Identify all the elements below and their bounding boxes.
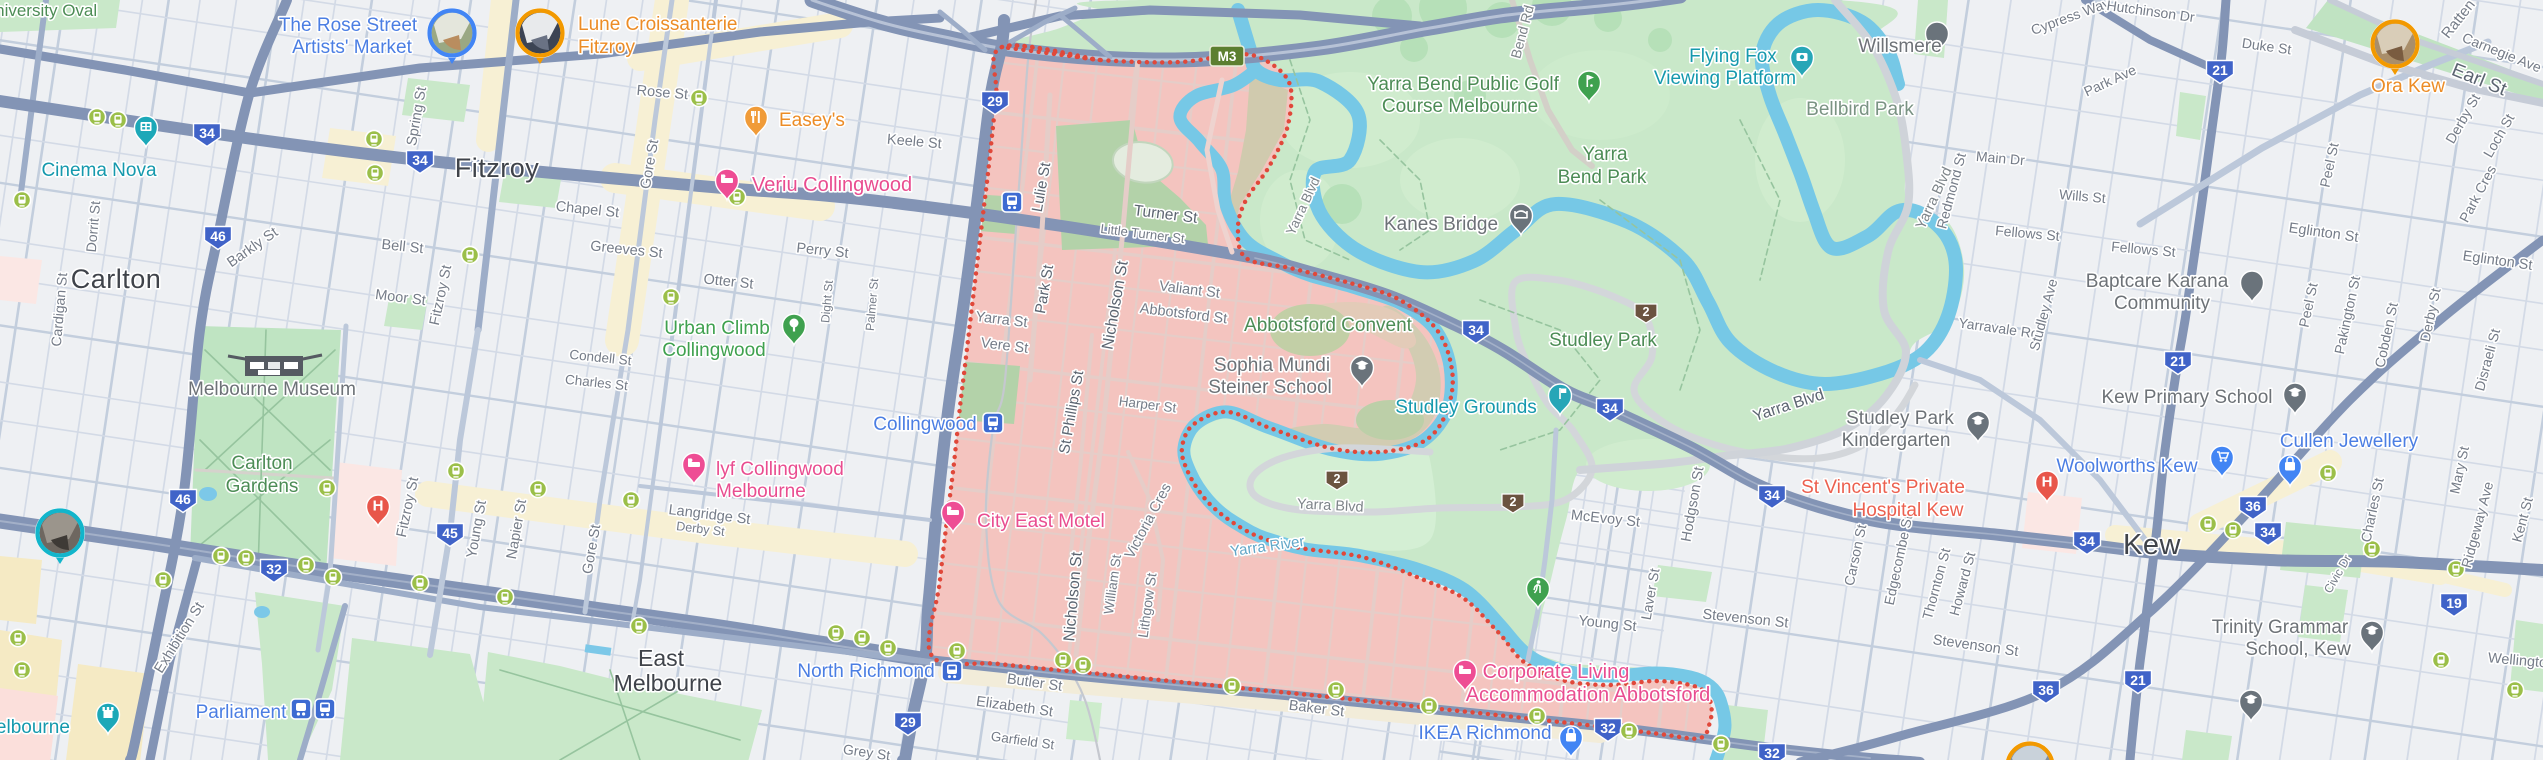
svg-text:29: 29 bbox=[987, 93, 1003, 109]
svg-text:29: 29 bbox=[900, 714, 916, 730]
svg-text:Kew Primary School: Kew Primary School bbox=[2101, 387, 2272, 408]
svg-text:Urban Climb: Urban Climb bbox=[664, 318, 770, 339]
svg-text:36: 36 bbox=[2038, 682, 2054, 698]
svg-text:Corporate Living: Corporate Living bbox=[1483, 661, 1630, 683]
svg-text:Woolworths Kew: Woolworths Kew bbox=[2056, 456, 2197, 477]
svg-text:Melbourne Museum: Melbourne Museum bbox=[188, 379, 356, 400]
svg-text:Viewing Platform: Viewing Platform bbox=[1654, 68, 1796, 89]
svg-text:34: 34 bbox=[2260, 524, 2276, 540]
svg-text:Studley Grounds: Studley Grounds bbox=[1395, 397, 1537, 418]
svg-text:M3: M3 bbox=[1218, 49, 1237, 64]
svg-text:Cinema Nova: Cinema Nova bbox=[41, 160, 157, 181]
svg-text:2: 2 bbox=[1643, 305, 1650, 319]
svg-text:34: 34 bbox=[1468, 322, 1484, 338]
svg-text:Abbotsford Convent: Abbotsford Convent bbox=[1244, 315, 1413, 336]
svg-text:Melbourne: Melbourne bbox=[0, 717, 70, 738]
svg-text:Course Melbourne: Course Melbourne bbox=[1382, 96, 1538, 117]
svg-text:2: 2 bbox=[1334, 472, 1341, 486]
svg-text:Studley Park: Studley Park bbox=[1846, 408, 1954, 429]
svg-text:Gardens: Gardens bbox=[226, 476, 299, 497]
svg-text:34: 34 bbox=[1602, 400, 1618, 416]
svg-text:School, Kew: School, Kew bbox=[2245, 639, 2351, 660]
svg-text:Lune Croissanterie: Lune Croissanterie bbox=[578, 14, 737, 35]
svg-text:46: 46 bbox=[210, 228, 226, 244]
svg-text:Kindergarten: Kindergarten bbox=[1842, 430, 1951, 451]
svg-text:Melbourne: Melbourne bbox=[614, 670, 723, 696]
svg-text:Artists' Market: Artists' Market bbox=[292, 37, 412, 58]
svg-text:19: 19 bbox=[2446, 595, 2462, 611]
svg-text:21: 21 bbox=[2170, 353, 2186, 369]
svg-text:Collingwood: Collingwood bbox=[662, 340, 766, 361]
svg-text:Willsmere: Willsmere bbox=[1858, 36, 1941, 57]
svg-text:Trinity Grammar: Trinity Grammar bbox=[2212, 617, 2349, 638]
svg-text:Carlton: Carlton bbox=[231, 453, 292, 474]
svg-text:Steiner School: Steiner School bbox=[1208, 377, 1332, 398]
svg-text:North Richmond: North Richmond bbox=[797, 661, 934, 682]
svg-text:Community: Community bbox=[2114, 293, 2211, 314]
svg-text:21: 21 bbox=[2130, 672, 2146, 688]
svg-text:Ora Kew: Ora Kew bbox=[2371, 76, 2445, 97]
svg-text:The Rose Street: The Rose Street bbox=[279, 15, 418, 36]
svg-text:Bend Park: Bend Park bbox=[1558, 167, 1647, 188]
svg-text:2: 2 bbox=[1510, 495, 1517, 509]
svg-text:34: 34 bbox=[412, 152, 428, 168]
svg-text:32: 32 bbox=[266, 561, 282, 577]
svg-text:St Vincent's Private: St Vincent's Private bbox=[1801, 477, 1965, 498]
svg-text:34: 34 bbox=[199, 125, 215, 141]
svg-text:City East Motel: City East Motel bbox=[977, 511, 1105, 532]
svg-text:H: H bbox=[373, 498, 384, 515]
svg-text:32: 32 bbox=[1764, 745, 1780, 760]
svg-text:IKEA Richmond: IKEA Richmond bbox=[1418, 723, 1551, 744]
svg-text:36: 36 bbox=[2245, 498, 2261, 514]
svg-text:45: 45 bbox=[442, 525, 458, 541]
svg-text:Yarra Bend Public Golf: Yarra Bend Public Golf bbox=[1367, 74, 1560, 95]
svg-text:Kanes Bridge: Kanes Bridge bbox=[1384, 214, 1498, 235]
svg-text:Flying Fox: Flying Fox bbox=[1689, 46, 1777, 67]
svg-text:Fitzroy: Fitzroy bbox=[578, 37, 636, 58]
svg-text:Bellbird Park: Bellbird Park bbox=[1806, 99, 1914, 120]
svg-text:Collingwood: Collingwood bbox=[873, 414, 977, 435]
svg-text:34: 34 bbox=[2079, 533, 2095, 549]
svg-text:East: East bbox=[638, 645, 685, 671]
svg-text:34: 34 bbox=[1764, 487, 1780, 503]
svg-text:21: 21 bbox=[2212, 62, 2228, 78]
svg-text:Yarra: Yarra bbox=[1582, 144, 1627, 165]
svg-text:Veriu Collingwood: Veriu Collingwood bbox=[752, 174, 912, 196]
svg-text:Studley Park: Studley Park bbox=[1549, 330, 1657, 351]
svg-text:Melbourne: Melbourne bbox=[716, 481, 806, 502]
svg-text:32: 32 bbox=[1600, 720, 1616, 736]
svg-text:Sophia Mundi: Sophia Mundi bbox=[1214, 355, 1330, 376]
svg-text:Fitzroy: Fitzroy bbox=[455, 153, 540, 183]
svg-text:Accommodation Abbotsford: Accommodation Abbotsford bbox=[1466, 684, 1711, 706]
svg-text:University Oval: University Oval bbox=[0, 1, 97, 20]
svg-text:Hospital Kew: Hospital Kew bbox=[1853, 500, 1964, 521]
svg-text:Cullen Jewellery: Cullen Jewellery bbox=[2280, 431, 2419, 452]
svg-text:Kew: Kew bbox=[2123, 529, 2181, 561]
svg-text:Carlton: Carlton bbox=[71, 264, 162, 294]
svg-text:46: 46 bbox=[175, 491, 191, 507]
svg-text:Baptcare Karana: Baptcare Karana bbox=[2086, 271, 2229, 292]
svg-text:H: H bbox=[2042, 474, 2053, 491]
svg-text:Parliament: Parliament bbox=[196, 702, 288, 723]
svg-text:lyf Collingwood: lyf Collingwood bbox=[716, 459, 844, 480]
svg-text:Easey's: Easey's bbox=[779, 110, 845, 131]
